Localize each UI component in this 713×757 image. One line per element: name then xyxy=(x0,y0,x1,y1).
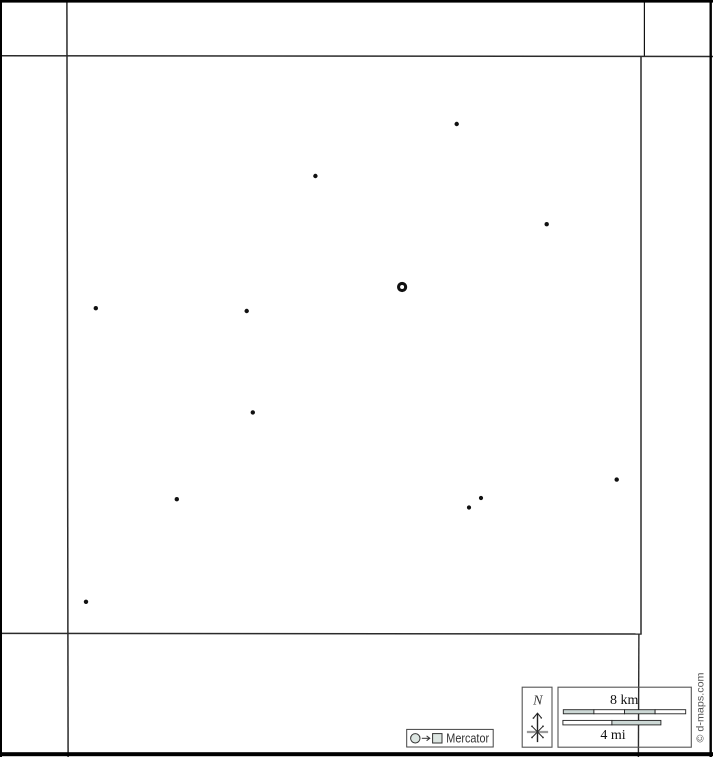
svg-text:4 mi: 4 mi xyxy=(600,728,625,743)
svg-text:Mercator: Mercator xyxy=(446,732,489,746)
svg-text:8 km: 8 km xyxy=(610,693,639,708)
svg-text:N: N xyxy=(532,694,543,709)
svg-text:© d-maps.com: © d-maps.com xyxy=(694,672,706,742)
